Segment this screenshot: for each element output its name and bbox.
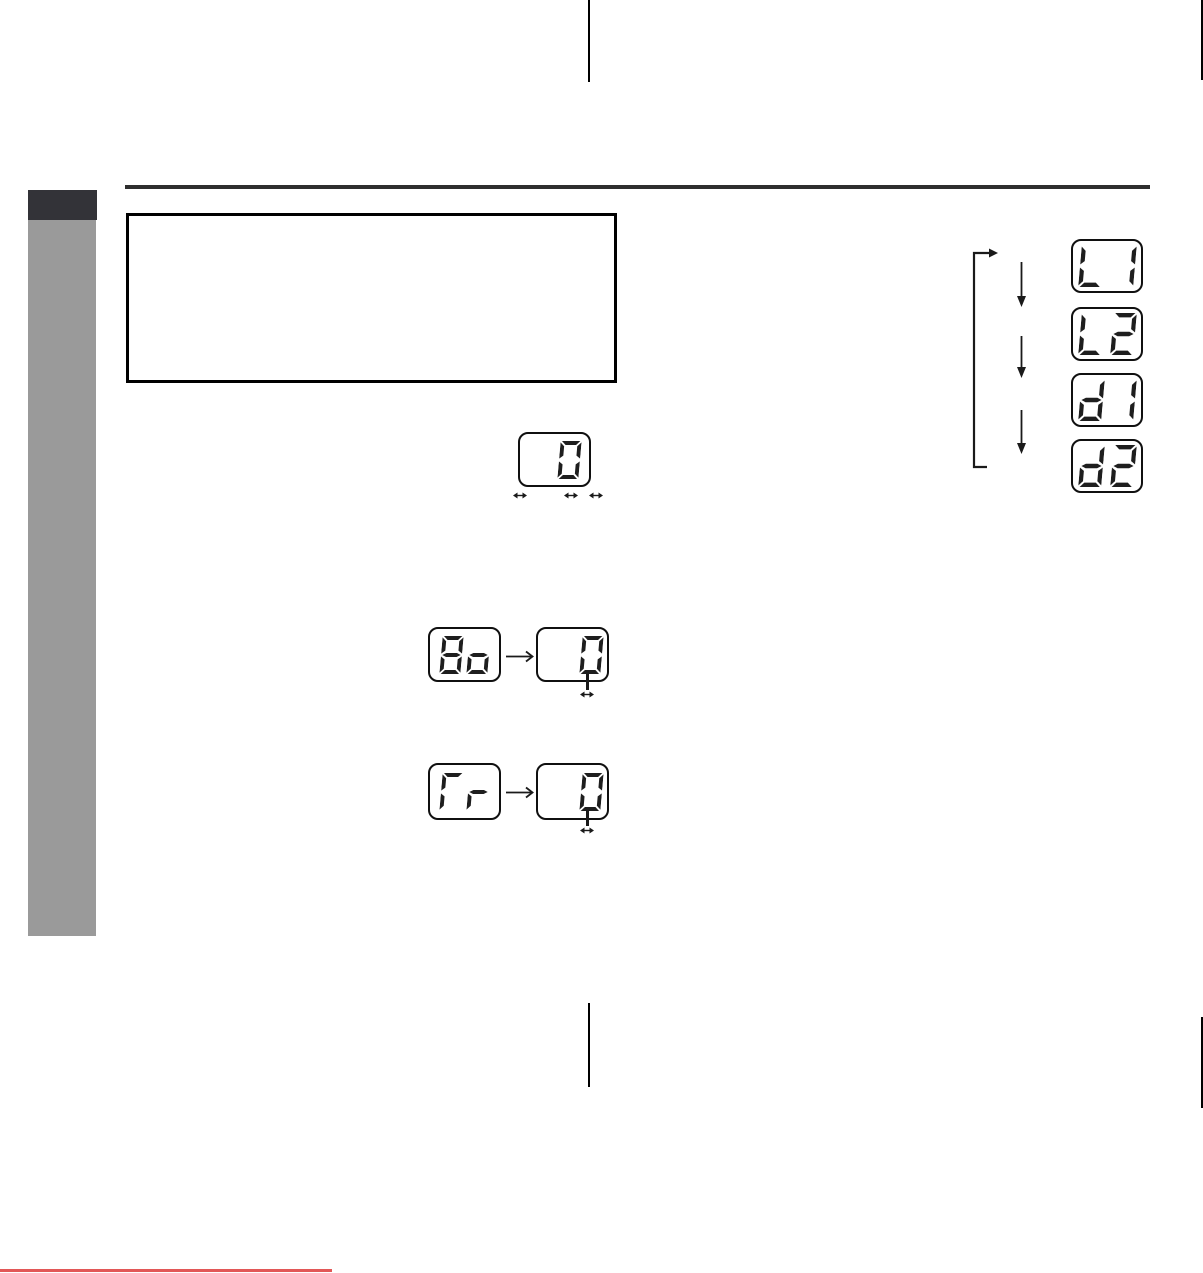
seven-segment-char (1110, 313, 1137, 355)
digit-cursor-tick (586, 674, 589, 690)
fold-mark-bottom-center (588, 1003, 590, 1087)
left-right-arrow-icon (580, 826, 594, 835)
left-right-arrow-icon (580, 690, 594, 699)
lcd-display-single-value (518, 432, 591, 487)
lcd-display-cycle-d2 (1071, 439, 1143, 493)
fold-mark-top-center (588, 0, 590, 82)
note-box (126, 213, 617, 383)
lcd-display-cycle-d1 (1071, 373, 1143, 427)
left-right-arrow-icon (564, 491, 578, 500)
lcd-display-cycle-L1 (1071, 239, 1143, 293)
bottom-red-line (0, 1269, 332, 1272)
seven-segment-char (1110, 445, 1137, 487)
seven-segment-char (439, 773, 463, 811)
left-right-arrow-icon (513, 491, 527, 500)
seven-segment-char (1078, 445, 1105, 487)
lcd-display-fader-label (428, 763, 501, 820)
down-arrow-icon (1015, 262, 1028, 307)
seven-segment-char (1110, 245, 1137, 287)
seven-segment-char (466, 773, 490, 811)
down-arrow-icon (1015, 410, 1028, 454)
seven-segment-char (1078, 313, 1105, 355)
seven-segment-char (439, 636, 463, 674)
loop-back-bracket-icon (965, 245, 1005, 475)
section-tab (28, 190, 97, 220)
right-arrow-icon (506, 786, 534, 799)
sidebar-band (28, 220, 96, 936)
lcd-display-balance-label (428, 627, 501, 682)
lcd-display-balance-value (536, 627, 609, 682)
lcd-display-fader-value (536, 763, 609, 820)
seven-segment-char (557, 441, 581, 479)
seven-segment-char (1110, 379, 1137, 421)
right-arrow-icon (506, 650, 534, 663)
scanned-page (0, 0, 1203, 1273)
seven-segment-char (579, 773, 603, 811)
down-arrow-icon (1015, 336, 1028, 378)
seven-segment-char (579, 636, 603, 674)
seven-segment-char (466, 636, 490, 674)
digit-cursor-tick (586, 810, 589, 826)
section-divider-rule (125, 185, 1150, 189)
lcd-display-cycle-L2 (1071, 307, 1143, 361)
seven-segment-char (1078, 379, 1105, 421)
seven-segment-char (1078, 245, 1105, 287)
left-right-arrow-icon (589, 491, 603, 500)
